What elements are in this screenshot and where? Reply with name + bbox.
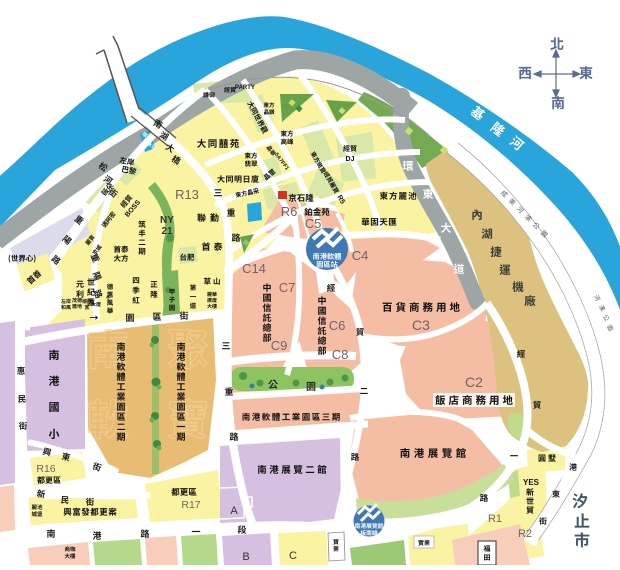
svg-text:B: B [242, 551, 249, 563]
svg-text:21: 21 [161, 226, 173, 237]
svg-text:C5: C5 [305, 216, 322, 231]
svg-text:R6: R6 [281, 204, 298, 219]
svg-text:NY: NY [160, 215, 174, 226]
svg-text:C3: C3 [412, 317, 430, 333]
svg-text:R17: R17 [181, 499, 200, 511]
svg-text:C2: C2 [465, 374, 483, 390]
svg-text:R2: R2 [518, 528, 532, 540]
svg-text:C: C [289, 550, 297, 562]
svg-text:R13: R13 [175, 187, 199, 202]
svg-text:C4: C4 [352, 248, 369, 263]
svg-text:A: A [230, 505, 238, 517]
svg-text:DJ: DJ [346, 156, 355, 163]
svg-text:R16: R16 [36, 463, 55, 475]
svg-text:C7: C7 [279, 280, 296, 295]
svg-text:C14: C14 [242, 261, 266, 276]
svg-text:C9: C9 [271, 338, 288, 353]
svg-text:C8: C8 [332, 347, 349, 362]
svg-text:C6: C6 [329, 318, 346, 333]
svg-text:PARTY: PARTY [235, 85, 255, 91]
svg-text:R1: R1 [488, 513, 502, 525]
svg-text:YES: YES [523, 478, 540, 487]
